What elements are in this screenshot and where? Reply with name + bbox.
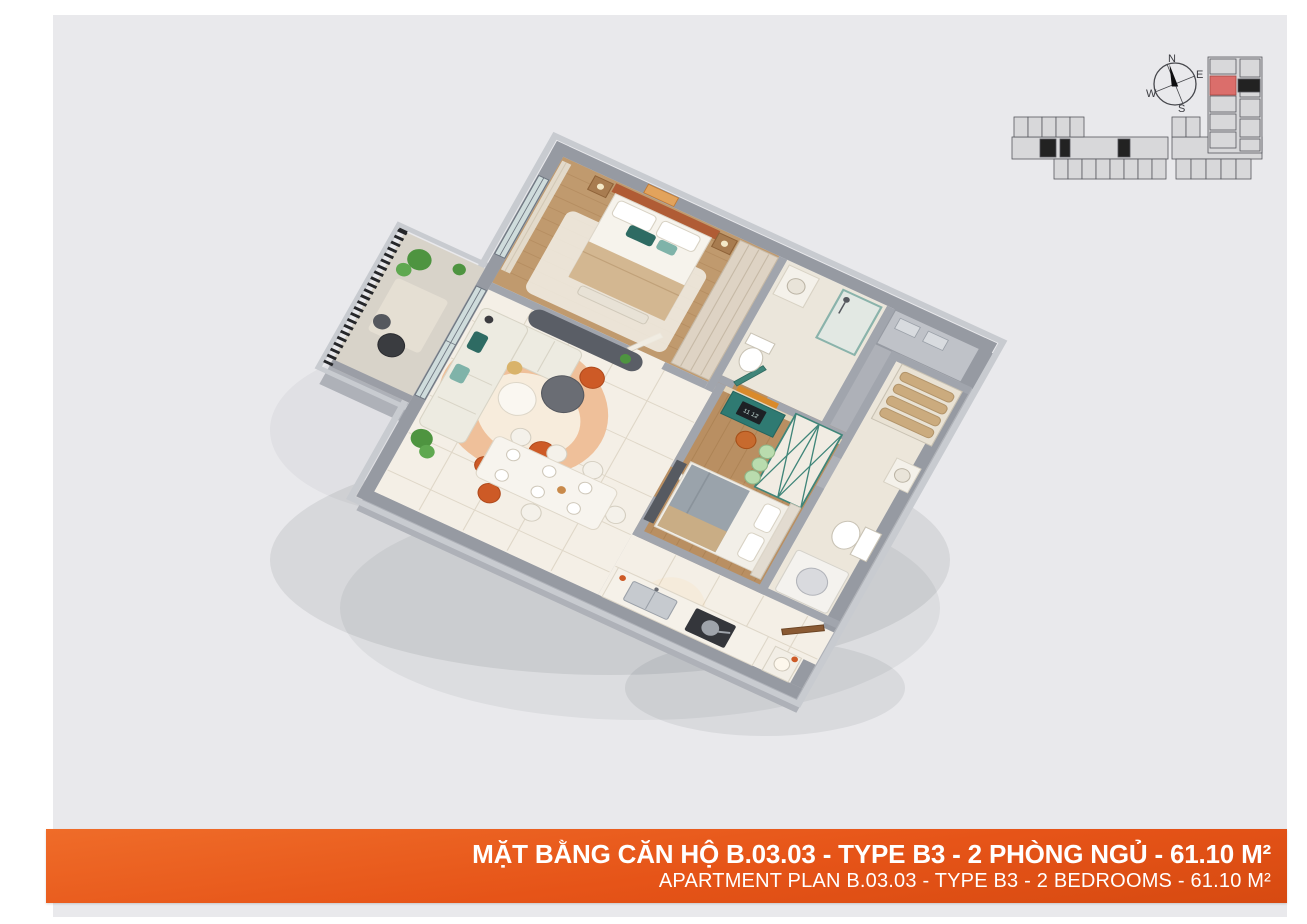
compass-south: S: [1178, 103, 1185, 115]
plan-title-en: APARTMENT PLAN B.03.03 - TYPE B3 - 2 BED…: [659, 870, 1271, 892]
title-banner: MẶT BẰNG CĂN HỘ B.03.03 - TYPE B3 - 2 PH…: [46, 829, 1287, 903]
compass-west: W: [1146, 88, 1157, 100]
compass-north: N: [1168, 53, 1176, 65]
compass-east: E: [1196, 69, 1203, 81]
key-plan: [1012, 57, 1262, 179]
highlighted-unit: [1210, 76, 1236, 95]
compass: N E W S: [1146, 53, 1203, 115]
plan-title-vi: MẶT BẰNG CĂN HỘ B.03.03 - TYPE B3 - 2 PH…: [472, 840, 1271, 869]
apartment-3d-floorplan: 11 12: [0, 0, 1307, 924]
